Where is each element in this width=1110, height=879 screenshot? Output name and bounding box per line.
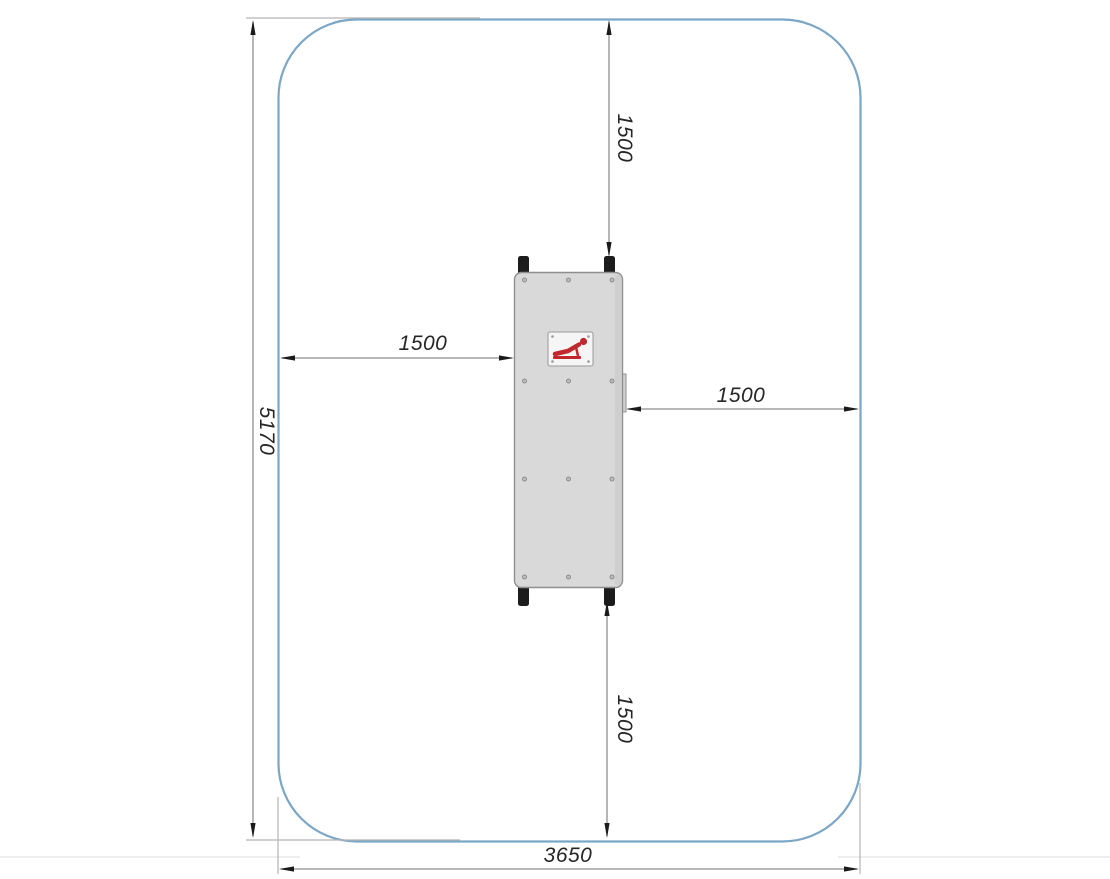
dimension-label-clearance-left: 1500 xyxy=(399,332,448,356)
screw-dot xyxy=(567,278,571,282)
equipment-plate xyxy=(515,273,623,588)
screw-dot xyxy=(610,477,614,481)
label-screw-dot xyxy=(551,335,554,338)
screw-dot xyxy=(610,379,614,383)
arrowhead xyxy=(606,242,611,257)
screw-dot xyxy=(523,477,527,481)
dimension-label-clearance-right: 1500 xyxy=(717,384,766,408)
dimension-label-total-width: 3650 xyxy=(544,844,593,868)
figure-ground-line xyxy=(553,356,581,359)
screw-dot xyxy=(523,278,527,282)
screw-dot xyxy=(523,575,527,579)
arrowhead xyxy=(844,866,859,871)
arrowhead xyxy=(279,866,294,871)
equipment-top-view xyxy=(515,256,627,606)
screw-dot xyxy=(610,575,614,579)
figure-head xyxy=(580,338,587,345)
arrowhead xyxy=(250,823,255,838)
label-screw-dot xyxy=(587,360,590,363)
label-screw-dot xyxy=(551,360,554,363)
arrowhead xyxy=(844,406,859,411)
technical-drawing-canvas: 5170 1500 1500 1500 1500 3650 xyxy=(0,0,1110,879)
label-screw-dot xyxy=(587,335,590,338)
arrowhead xyxy=(250,20,255,35)
arrowhead xyxy=(606,20,611,35)
arrowhead xyxy=(280,355,295,360)
equipment-label-plate xyxy=(548,332,593,366)
screw-dot xyxy=(567,575,571,579)
dimension-label-clearance-top: 1500 xyxy=(612,114,636,163)
safety-zone-plan-drawing xyxy=(0,0,1110,879)
plate-edge-shading xyxy=(615,275,621,585)
arrowhead xyxy=(604,823,609,838)
dimension-label-total-height: 5170 xyxy=(254,407,278,456)
screw-dot xyxy=(523,379,527,383)
arrowhead xyxy=(626,406,641,411)
screw-dot xyxy=(567,379,571,383)
screw-dot xyxy=(610,278,614,282)
dimension-label-clearance-bottom: 1500 xyxy=(612,695,636,744)
arrowhead xyxy=(499,355,514,360)
screw-dot xyxy=(567,477,571,481)
